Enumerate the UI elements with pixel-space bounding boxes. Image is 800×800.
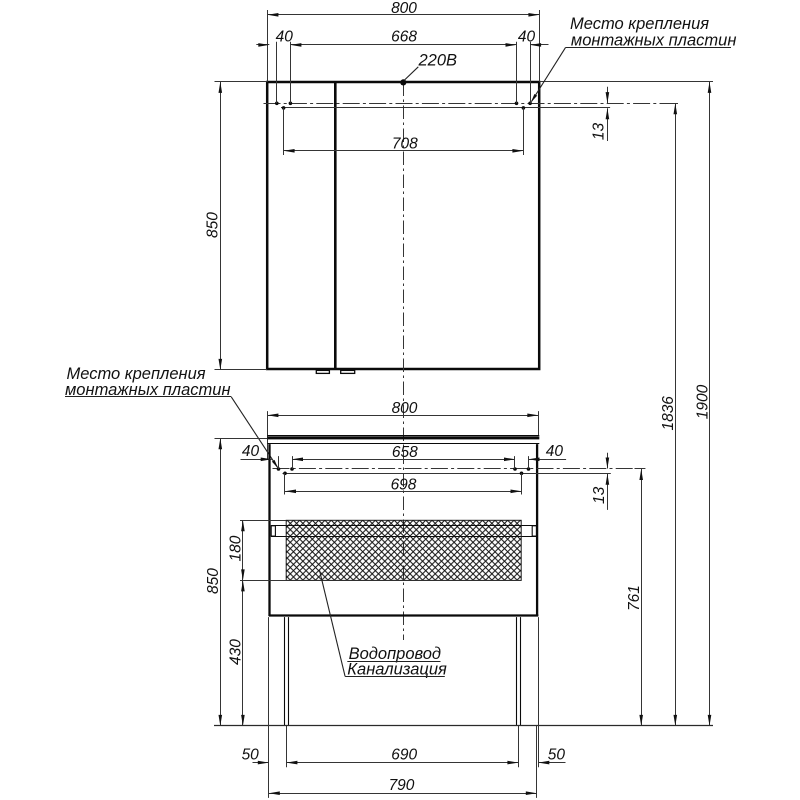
svg-text:1900: 1900 — [694, 384, 711, 419]
svg-text:50: 50 — [242, 746, 260, 763]
svg-text:690: 690 — [391, 746, 417, 763]
svg-text:800: 800 — [392, 400, 418, 417]
svg-text:13: 13 — [591, 486, 608, 504]
svg-text:790: 790 — [389, 777, 415, 794]
svg-text:Канализация: Канализация — [347, 661, 447, 679]
svg-text:40: 40 — [276, 29, 294, 46]
svg-text:800: 800 — [391, 0, 417, 17]
svg-text:850: 850 — [205, 568, 222, 594]
svg-text:658: 658 — [392, 444, 418, 461]
svg-text:430: 430 — [228, 639, 245, 665]
svg-text:40: 40 — [546, 443, 564, 460]
svg-text:монтажных пластин: монтажных пластин — [571, 32, 737, 50]
svg-text:850: 850 — [205, 212, 222, 238]
svg-text:708: 708 — [392, 135, 418, 152]
svg-text:180: 180 — [228, 535, 245, 561]
svg-text:40: 40 — [518, 29, 536, 46]
svg-text:Место крепления: Место крепления — [570, 15, 709, 33]
svg-text:668: 668 — [391, 29, 417, 46]
svg-text:1836: 1836 — [660, 396, 677, 431]
svg-text:40: 40 — [242, 443, 260, 460]
svg-text:220В: 220В — [418, 51, 458, 69]
svg-text:698: 698 — [391, 477, 417, 494]
svg-text:13: 13 — [591, 123, 608, 141]
svg-text:50: 50 — [548, 746, 566, 763]
svg-text:761: 761 — [626, 585, 643, 611]
